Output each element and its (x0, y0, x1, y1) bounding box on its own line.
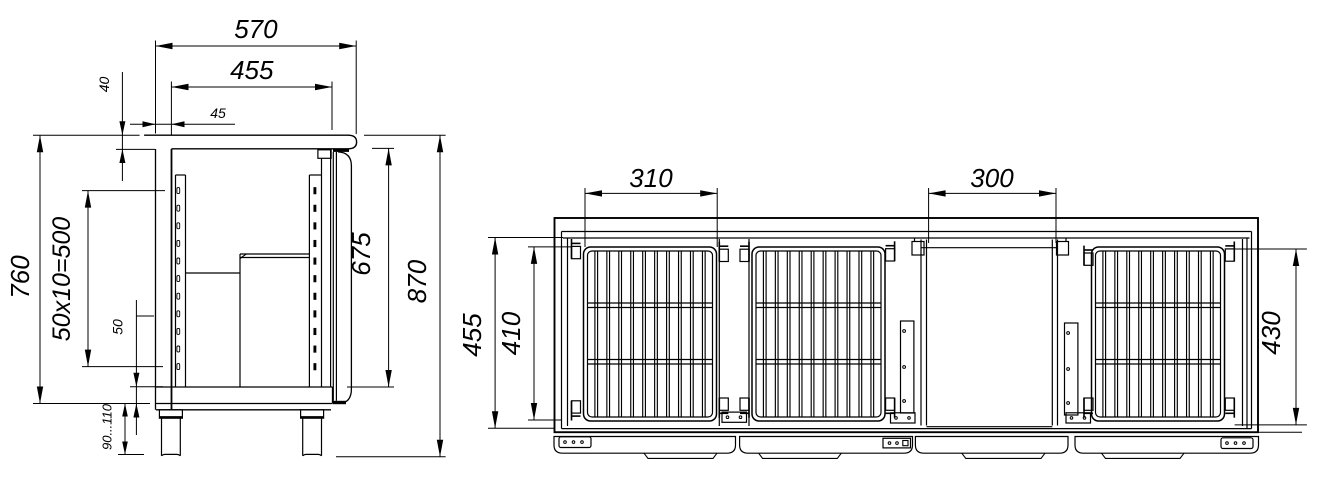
svg-text:430: 430 (1256, 311, 1286, 355)
svg-text:50х10=500: 50х10=500 (48, 217, 76, 342)
svg-text:455: 455 (230, 55, 274, 85)
svg-text:50: 50 (110, 319, 126, 335)
svg-text:310: 310 (629, 163, 673, 193)
svg-text:760: 760 (5, 255, 35, 299)
svg-text:300: 300 (970, 163, 1014, 193)
svg-text:90...110: 90...110 (100, 403, 115, 450)
svg-text:410: 410 (496, 311, 526, 355)
svg-text:870: 870 (402, 259, 432, 303)
svg-text:455: 455 (457, 313, 487, 357)
svg-text:675: 675 (346, 232, 376, 276)
svg-text:45: 45 (210, 105, 226, 121)
svg-text:40: 40 (96, 77, 112, 93)
svg-text:570: 570 (234, 14, 278, 44)
